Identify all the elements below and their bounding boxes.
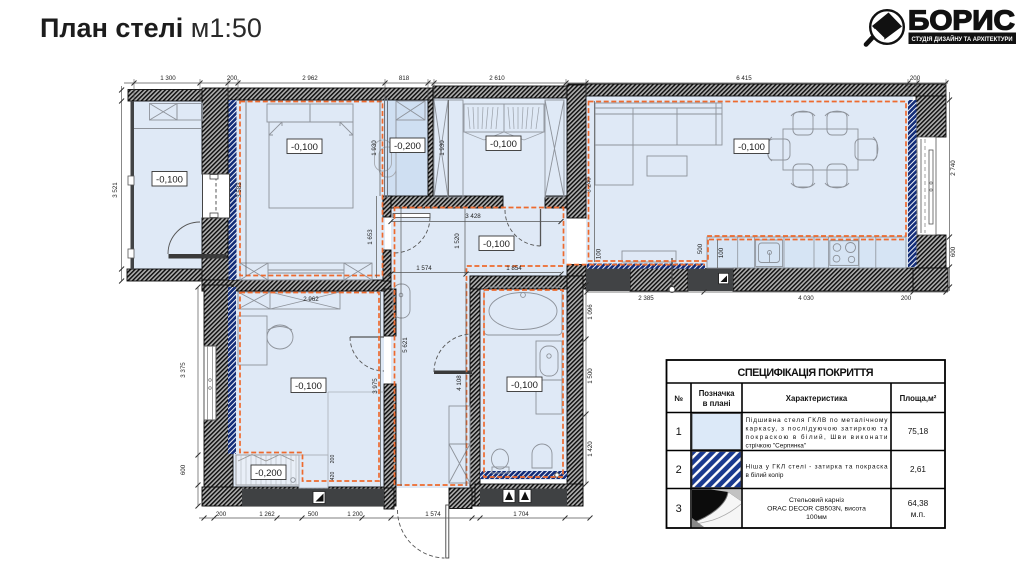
svg-text:6 415: 6 415: [736, 75, 752, 82]
svg-text:План стелі м1:50: План стелі м1:50: [40, 13, 262, 43]
svg-text:-0,200: -0,200: [394, 141, 421, 152]
svg-text:1 704: 1 704: [513, 511, 529, 518]
svg-text:5 621: 5 621: [402, 337, 409, 353]
svg-text:СПЕЦИФІКАЦІЯ ПОКРИТТЯ: СПЕЦИФІКАЦІЯ ПОКРИТТЯ: [738, 367, 874, 379]
svg-text:200: 200: [227, 75, 238, 82]
svg-text:1 574: 1 574: [416, 265, 432, 272]
svg-text:3 521: 3 521: [112, 182, 119, 198]
svg-text:в плані: в плані: [703, 399, 731, 408]
svg-text:1 096: 1 096: [587, 304, 594, 320]
svg-text:1: 1: [676, 426, 682, 438]
svg-text:-0,100: -0,100: [483, 239, 510, 250]
svg-text:-0,100: -0,100: [291, 142, 318, 153]
svg-text:3 375: 3 375: [180, 362, 187, 378]
svg-text:100мм: 100мм: [806, 514, 827, 521]
svg-text:-0,100: -0,100: [511, 380, 538, 391]
svg-text:-0,100: -0,100: [490, 139, 517, 150]
svg-text:Позначка: Позначка: [699, 389, 735, 398]
svg-text:1 262: 1 262: [259, 511, 275, 518]
svg-text:100: 100: [718, 247, 725, 258]
svg-text:1 200: 1 200: [347, 511, 363, 518]
svg-text:-0,100: -0,100: [156, 175, 183, 186]
svg-text:3 428: 3 428: [465, 213, 481, 220]
svg-text:3 240: 3 240: [586, 177, 593, 193]
svg-text:Стельовий карніз: Стельовий карніз: [789, 496, 844, 504]
svg-text:2 962: 2 962: [303, 296, 319, 303]
svg-text:в білий колір: в білий колір: [746, 471, 784, 479]
svg-text:1 520: 1 520: [454, 233, 461, 249]
svg-text:2 740: 2 740: [950, 160, 957, 176]
svg-text:600: 600: [950, 246, 957, 257]
svg-text:БОРИС: БОРИС: [908, 5, 1015, 36]
svg-text:№: №: [674, 394, 683, 403]
svg-text:600: 600: [180, 464, 187, 475]
svg-text:1 574: 1 574: [425, 511, 441, 518]
svg-text:420: 420: [330, 472, 336, 481]
svg-text:Характеристика: Характеристика: [786, 394, 848, 403]
svg-text:Площа,м²: Площа,м²: [900, 394, 937, 403]
svg-text:3 583: 3 583: [236, 182, 243, 198]
svg-text:2: 2: [676, 464, 682, 476]
svg-text:-0,100: -0,100: [295, 381, 322, 392]
svg-text:СТУДІЯ ДИЗАЙНУ ТА АРХІТЕКТУРИ: СТУДІЯ ДИЗАЙНУ ТА АРХІТЕКТУРИ: [912, 34, 1013, 43]
svg-text:100: 100: [596, 248, 603, 259]
svg-text:1 300: 1 300: [160, 75, 176, 82]
svg-text:4 108: 4 108: [456, 375, 463, 391]
svg-text:1 500: 1 500: [587, 368, 594, 384]
svg-text:ORAC DECOR CB503N, висота: ORAC DECOR CB503N, висота: [767, 506, 866, 513]
svg-text:3 975: 3 975: [372, 378, 379, 394]
svg-text:200: 200: [901, 295, 912, 302]
svg-text:-0,200: -0,200: [255, 468, 282, 479]
svg-text:200: 200: [910, 75, 921, 82]
svg-text:стрічкою "Серпянка": стрічкою "Серпянка": [746, 442, 807, 450]
svg-text:1 854: 1 854: [506, 265, 522, 272]
svg-text:1 420: 1 420: [587, 441, 594, 457]
svg-text:2 385: 2 385: [638, 295, 654, 302]
svg-text:200: 200: [330, 455, 336, 464]
svg-text:1 930: 1 930: [371, 140, 378, 156]
svg-text:64,38: 64,38: [908, 499, 929, 508]
svg-text:4 030: 4 030: [798, 295, 814, 302]
svg-text:каркасу, з послідуючою затирко: каркасу, з послідуючою затиркою та: [746, 425, 888, 433]
svg-text:1 653: 1 653: [367, 229, 374, 245]
svg-text:75,18: 75,18: [908, 427, 929, 436]
svg-text:3: 3: [676, 503, 682, 515]
svg-text:500: 500: [308, 511, 319, 518]
svg-text:818: 818: [399, 75, 410, 82]
svg-text:покраскою в білий, Шви виконат: покраскою в білий, Шви виконати: [746, 433, 888, 441]
svg-text:2 610: 2 610: [489, 75, 505, 82]
svg-text:2,61: 2,61: [910, 465, 926, 474]
svg-text:200: 200: [216, 511, 227, 518]
svg-text:Ніша у ГКЛ стелі - затирка та: Ніша у ГКЛ стелі - затирка та покраска: [746, 463, 888, 471]
svg-text:1 930: 1 930: [439, 140, 446, 156]
svg-text:2 962: 2 962: [302, 75, 318, 82]
svg-text:Підшивна стеля ГКЛВ по металіч: Підшивна стеля ГКЛВ по металічному: [746, 416, 889, 424]
svg-text:-0,100: -0,100: [738, 142, 765, 153]
svg-text:м.п.: м.п.: [911, 510, 926, 519]
svg-text:500: 500: [697, 243, 704, 254]
